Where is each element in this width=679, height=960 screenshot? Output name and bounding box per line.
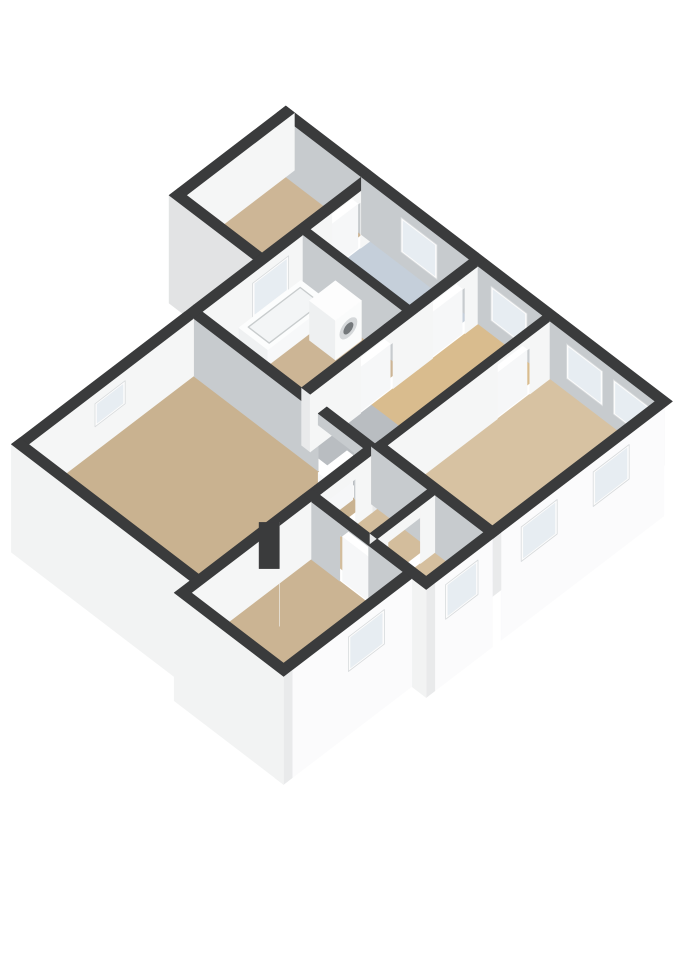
wall-se-rooms-divider-1-face <box>420 495 434 564</box>
wall-stair-diagonal-wall-top <box>259 522 279 568</box>
wall-bedroom-south-wall-cap <box>492 532 501 596</box>
wall-blue-east-1-face <box>465 266 478 334</box>
wall-d-south-wall-cap <box>284 670 293 785</box>
floor-plan-3d-view <box>0 0 679 960</box>
floor-plan-3d-render <box>0 0 679 960</box>
wall-blue-east-2-face <box>418 301 432 370</box>
wall-bath-east-2-cap <box>302 388 311 452</box>
wall-se-step-wall-cap <box>426 583 435 698</box>
wall-se-step-wall-face <box>412 579 426 698</box>
